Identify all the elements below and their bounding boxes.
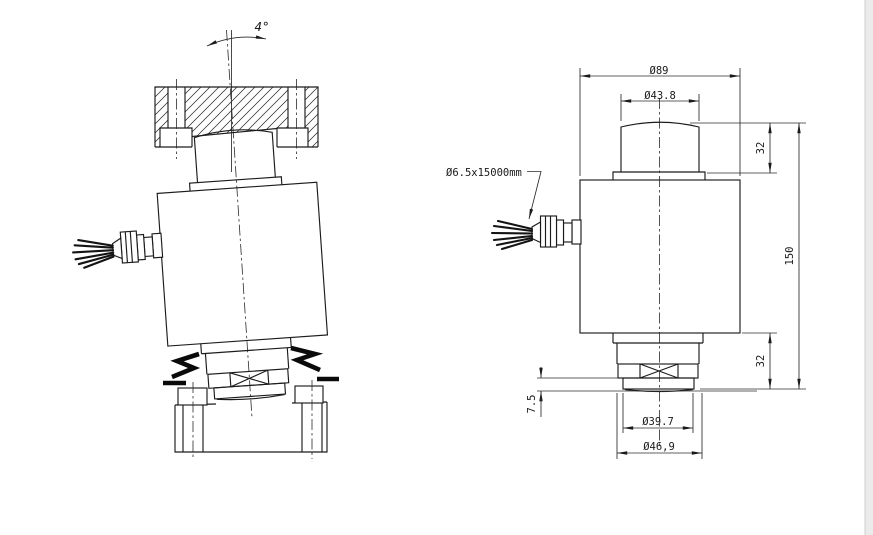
dim-bottom-section-height: 32 bbox=[755, 355, 767, 368]
dim-total-height: 150 bbox=[784, 247, 796, 266]
dim-load-button-diameter: Ø43.8 bbox=[644, 90, 676, 102]
dim-base-inner-diameter: Ø39.7 bbox=[642, 416, 674, 428]
tilt-angle-label: 4° bbox=[254, 19, 269, 34]
dim-base-clearance: 7.5 bbox=[526, 395, 538, 414]
dim-top-section-height: 32 bbox=[755, 142, 767, 155]
dim-overall-diameter: Ø89 bbox=[650, 65, 669, 77]
technical-drawing-page: 4° bbox=[0, 0, 873, 535]
scrollbar-strip[interactable] bbox=[865, 0, 873, 535]
drawing-background bbox=[0, 0, 873, 535]
cable-spec-label: Ø6.5x15000mm bbox=[446, 167, 522, 179]
bolt-boss-right bbox=[295, 386, 323, 403]
bolt-boss-left bbox=[178, 388, 207, 405]
technical-drawing-canvas: 4° bbox=[0, 0, 873, 535]
dim-base-outer-diameter: Ø46,9 bbox=[643, 441, 675, 453]
